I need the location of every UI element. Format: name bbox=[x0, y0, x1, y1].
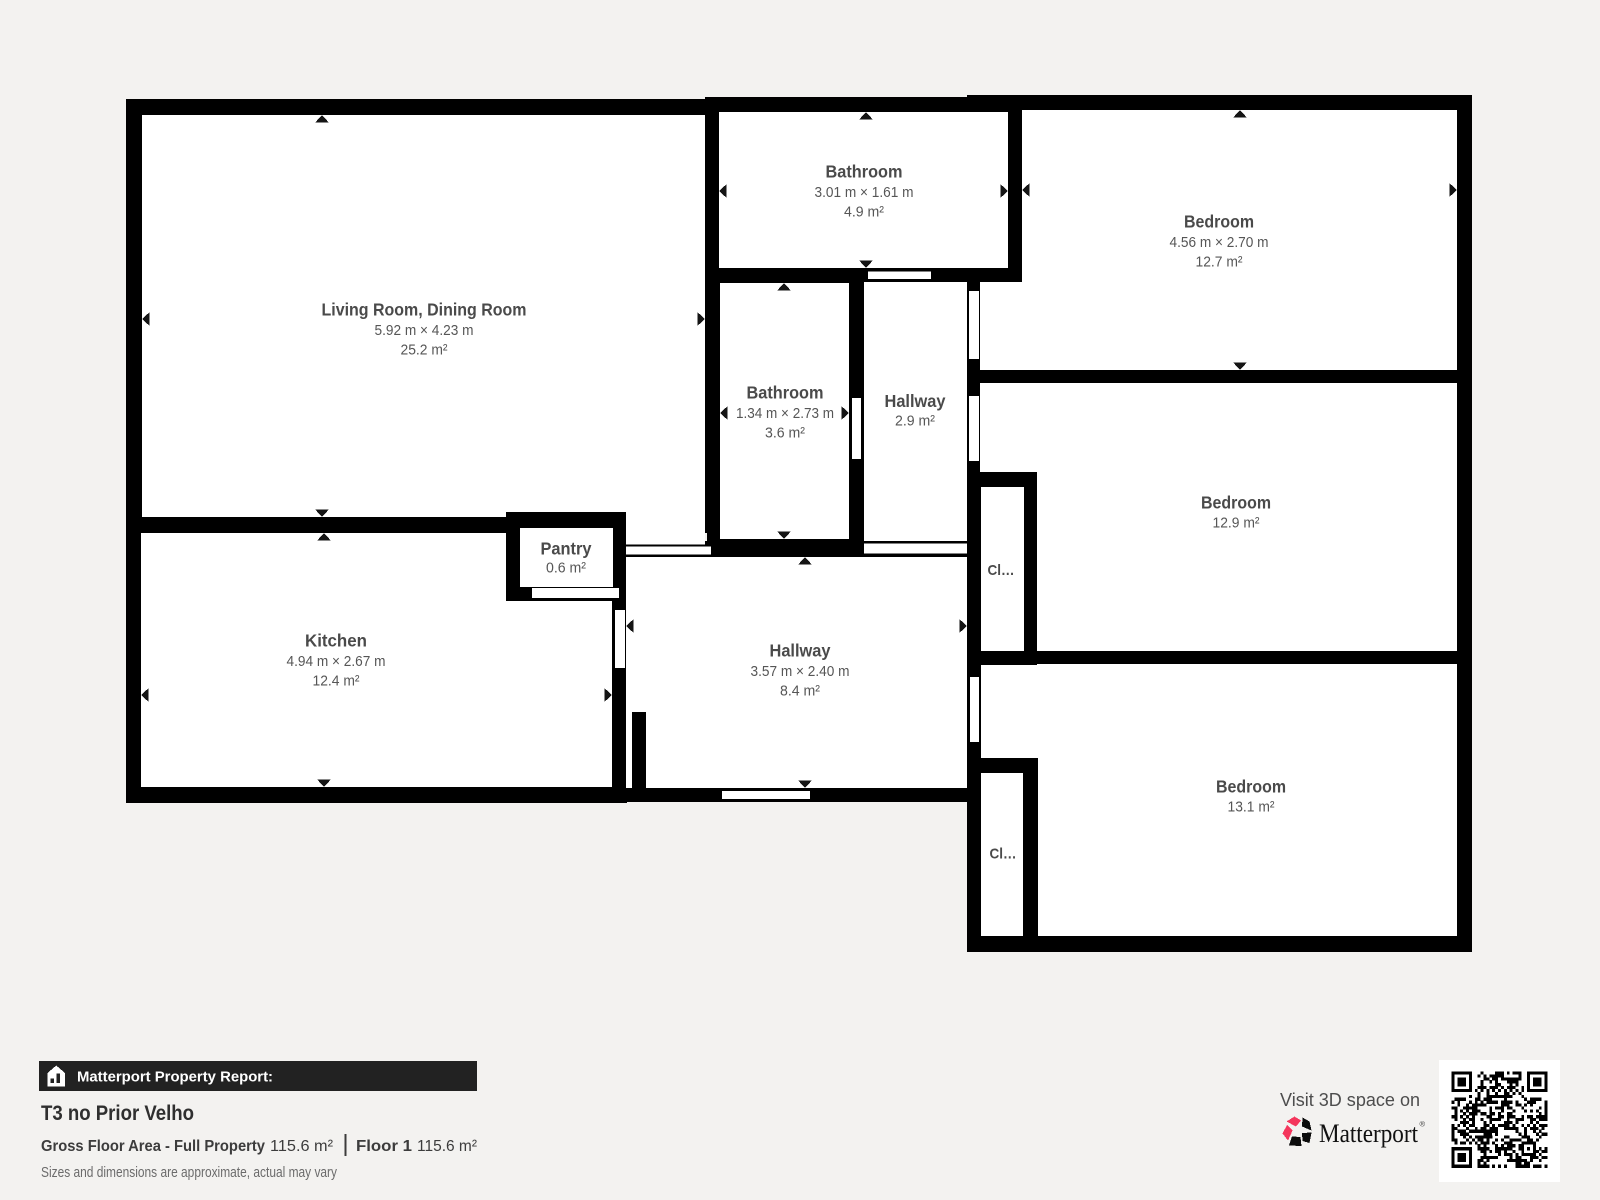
svg-text:Matterport: Matterport bbox=[1319, 1119, 1419, 1148]
svg-text:T3 no Prior Velho: T3 no Prior Velho bbox=[41, 1102, 194, 1125]
svg-text:1.34 m × 2.73 m: 1.34 m × 2.73 m bbox=[736, 405, 834, 422]
svg-text:Matterport Property Report:: Matterport Property Report: bbox=[77, 1070, 273, 1086]
svg-text:8.4 m²: 8.4 m² bbox=[780, 683, 820, 700]
svg-text:Sizes and dimensions are appro: Sizes and dimensions are approximate, ac… bbox=[41, 1165, 338, 1181]
svg-text:4.9 m²: 4.9 m² bbox=[844, 204, 884, 221]
svg-text:3.01 m × 1.61 m: 3.01 m × 1.61 m bbox=[815, 184, 914, 201]
svg-text:3.6 m²: 3.6 m² bbox=[765, 425, 805, 442]
svg-text:Bathroom: Bathroom bbox=[826, 162, 903, 182]
svg-text:3.57 m × 2.40 m: 3.57 m × 2.40 m bbox=[751, 663, 850, 680]
svg-text:5.92 m × 4.23 m: 5.92 m × 4.23 m bbox=[375, 322, 474, 339]
svg-text:Cl…: Cl… bbox=[990, 846, 1017, 863]
svg-text:0.6 m²: 0.6 m² bbox=[546, 560, 586, 577]
svg-text:4.94 m × 2.67 m: 4.94 m × 2.67 m bbox=[287, 653, 386, 670]
svg-text:2.9 m²: 2.9 m² bbox=[895, 413, 935, 430]
svg-text:®: ® bbox=[1420, 1120, 1426, 1129]
svg-text:4.56 m × 2.70 m: 4.56 m × 2.70 m bbox=[1170, 234, 1269, 251]
svg-text:13.1 m²: 13.1 m² bbox=[1228, 799, 1275, 816]
svg-text:Hallway: Hallway bbox=[885, 391, 946, 411]
svg-text:Bedroom: Bedroom bbox=[1184, 212, 1254, 232]
svg-text:12.9 m²: 12.9 m² bbox=[1213, 515, 1260, 532]
svg-text:Bathroom: Bathroom bbox=[747, 383, 824, 403]
svg-text:12.4 m²: 12.4 m² bbox=[313, 673, 360, 690]
svg-text:Visit 3D space on: Visit 3D space on bbox=[1280, 1090, 1420, 1110]
svg-text:Hallway: Hallway bbox=[770, 641, 831, 661]
svg-text:Gross Floor Area - Full Proper: Gross Floor Area - Full Property115.6 m² bbox=[41, 1138, 334, 1155]
svg-text:Pantry: Pantry bbox=[541, 539, 592, 559]
svg-text:Cl…: Cl… bbox=[988, 562, 1015, 579]
svg-text:Kitchen: Kitchen bbox=[305, 631, 367, 651]
svg-text:12.7 m²: 12.7 m² bbox=[1196, 254, 1243, 271]
svg-text:Living Room, Dining Room: Living Room, Dining Room bbox=[322, 300, 527, 320]
svg-text:Bedroom: Bedroom bbox=[1216, 777, 1286, 797]
svg-text:Bedroom: Bedroom bbox=[1201, 493, 1271, 513]
svg-text:Floor 1115.6 m²: Floor 1115.6 m² bbox=[356, 1138, 478, 1155]
svg-text:25.2 m²: 25.2 m² bbox=[401, 342, 448, 359]
